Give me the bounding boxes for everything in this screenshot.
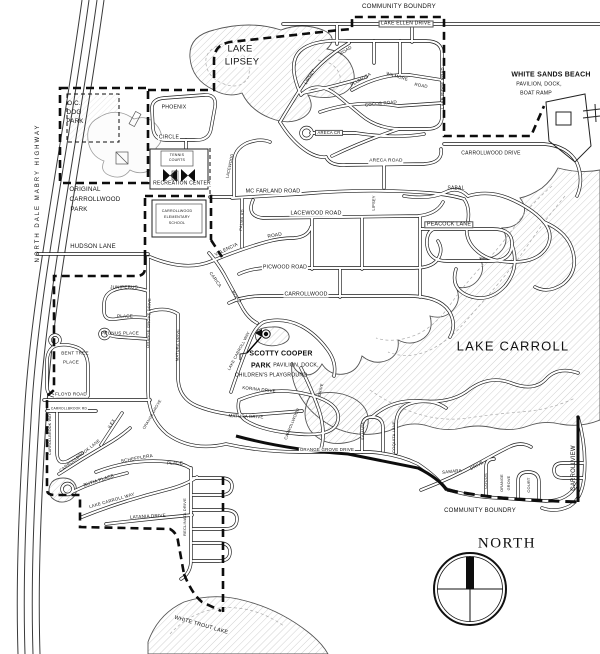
- recreation-center-block: [150, 149, 208, 189]
- beach-pavilion-icon: [556, 112, 571, 125]
- north-needle: [466, 557, 474, 589]
- compass-rose: [434, 553, 506, 625]
- map-canvas: [0, 0, 600, 654]
- school-block: [152, 200, 206, 237]
- white-trout-lake-water: [148, 597, 328, 654]
- map-root: COMMUNITY BOUNDRYLAKE ELLEN DRIVEWHITE S…: [0, 0, 600, 654]
- white-sands-beach-parcel: [546, 94, 600, 162]
- dock-icon: [583, 104, 600, 122]
